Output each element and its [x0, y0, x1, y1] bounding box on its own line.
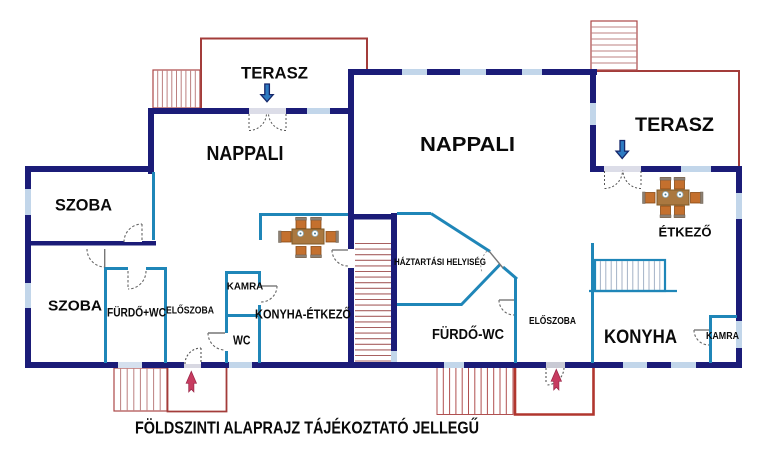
svg-text:ÉTKEZŐ: ÉTKEZŐ [659, 225, 712, 240]
svg-text:KAMRA: KAMRA [227, 281, 264, 293]
svg-text:KAMRA: KAMRA [706, 331, 739, 342]
svg-text:ELŐSZOBA: ELŐSZOBA [529, 314, 576, 327]
svg-text:KONYHA: KONYHA [604, 327, 677, 348]
svg-text:TERASZ: TERASZ [241, 64, 308, 83]
svg-text:NAPPALI: NAPPALI [207, 143, 284, 165]
svg-text:FÜRDŐ-WC: FÜRDŐ-WC [432, 325, 504, 343]
svg-text:KONYHA-ÉTKEZŐ: KONYHA-ÉTKEZŐ [255, 307, 351, 322]
svg-text:HÁZTARTÁSI HELYISÉG: HÁZTARTÁSI HELYISÉG [394, 257, 486, 268]
svg-text:SZOBA: SZOBA [48, 299, 103, 315]
svg-text:NAPPALI: NAPPALI [420, 134, 515, 156]
svg-text:FÖLDSZINTI ALAPRAJZ TÁJÉKOZTAT: FÖLDSZINTI ALAPRAJZ TÁJÉKOZTATÓ JELLEGŰ [135, 417, 479, 438]
svg-text:WC: WC [233, 334, 251, 348]
svg-text:ELŐSZOBA: ELŐSZOBA [166, 304, 214, 317]
svg-text:FÜRDŐ+WC: FÜRDŐ+WC [107, 305, 166, 320]
svg-text:TERASZ: TERASZ [635, 115, 714, 136]
svg-text:SZOBA: SZOBA [55, 196, 112, 215]
